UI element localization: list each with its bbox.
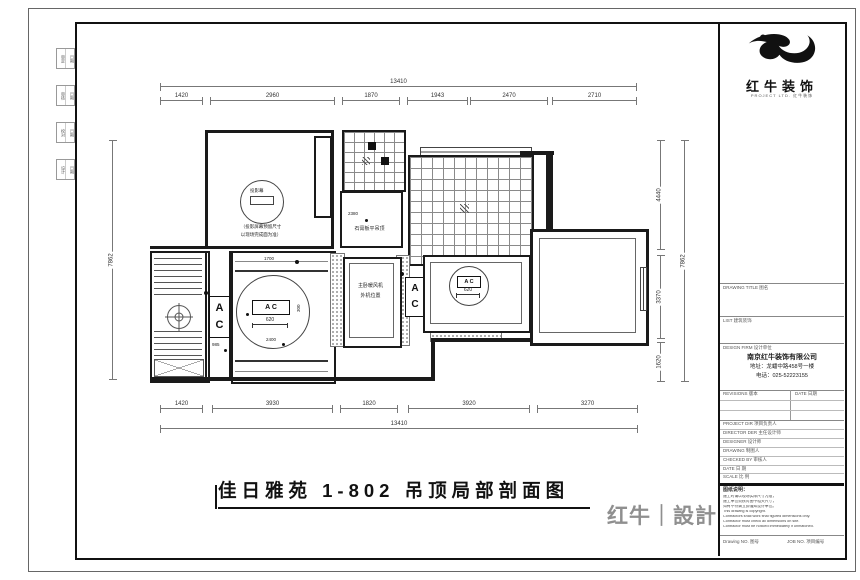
ceiling-fan-icon [167, 305, 191, 329]
tb-field-list: LIST 建筑装饰 [723, 319, 752, 324]
dim-bottom-seg: 3930 [212, 408, 333, 409]
louver-stripes [154, 331, 202, 357]
dim-bottom-seg: 1420 [160, 408, 203, 409]
tb-line [720, 343, 844, 344]
tb-row-scale: SCALE 比 例 [723, 475, 749, 480]
ac-dim-side: 300 [296, 304, 302, 312]
section-letter-c: C [216, 320, 224, 331]
tb-note: Contractors shall work final figured dim… [723, 515, 841, 519]
band-dim-bottom: 2400 [266, 337, 276, 343]
window-right [640, 267, 647, 311]
tb-note: 如有不符请立即通知设计单位。 [723, 505, 841, 509]
tb-drawing-no: Drawing NO. 图号 [723, 540, 759, 545]
section-letter-a: A [411, 284, 418, 294]
ac-dim: 620 [456, 294, 480, 295]
dim-right-seg: 3370 [660, 255, 661, 339]
section-letter-c: C [411, 300, 418, 310]
shaft-x-box [154, 359, 204, 377]
margin-sign-label: 审核 [57, 86, 66, 105]
gypsum-dim-label: 2380 [348, 211, 358, 217]
tb-note: 施工时请以现场实际尺寸为准， [723, 495, 841, 499]
louver-stripes [154, 258, 202, 298]
leader-dot [365, 219, 368, 222]
wall-segment [150, 246, 206, 249]
tb-note: 施工单位须核对图中相关尺寸， [723, 500, 841, 504]
dim-top-seg: 1420 [160, 100, 203, 101]
wall-bottom [431, 338, 532, 342]
ac-dim: 620 [252, 324, 288, 325]
dim-right-seg: 1620 [660, 342, 661, 382]
margin-sign-label: 审定 [57, 49, 66, 68]
ceiling-hatch-cell [362, 157, 370, 165]
dim-top-seg: 2470 [470, 100, 548, 101]
dim-top-seg: 2960 [210, 100, 335, 101]
tb-row-drawing: DRAWING 制图人 [723, 449, 759, 454]
tb-field-design-firm: DESIGN FIRM 设计单位 [723, 346, 772, 351]
leader-dot [204, 291, 208, 295]
section-letter-a: A [216, 303, 224, 314]
brand-design-logo: 红牛｜設計 [607, 500, 717, 530]
tb-field-drawing-title: DRAWING TITLE 图名 [723, 286, 768, 291]
tb-note: This drawing is copyright. [723, 510, 841, 514]
margin-sign-box: 校对 日期 [56, 122, 75, 143]
wall-cabinet [314, 136, 332, 218]
tb-field-date: DATE 日期 [795, 392, 817, 397]
tb-row-designer: DESIGNER 设计师 [723, 440, 761, 445]
tb-note: Contractor must check all dimensions on … [723, 520, 841, 524]
section-marker-ac: A C [405, 277, 425, 317]
dim-top-seg: 1943 [407, 100, 468, 101]
wall-segment [546, 155, 553, 230]
heater-label-2: 外机位置 [343, 293, 398, 299]
tb-row-date: DATE 日 期 [723, 467, 746, 472]
dim-bottom-overall: 13410 [160, 428, 638, 429]
ceiling-band-bottom [235, 360, 328, 372]
margin-sign-label: 校对 [57, 123, 66, 142]
projector-note-2: 以现场完成面为准） [221, 232, 301, 238]
leader-dot [400, 272, 404, 276]
tb-field-revisions: REVISIONS 版本 [723, 392, 758, 397]
ac-unit-box: A C [252, 300, 290, 315]
bull-logo-icon [745, 28, 820, 74]
tb-line [720, 410, 844, 411]
margin-sign-box: 审核 日期 [56, 85, 75, 106]
tb-line [720, 535, 844, 536]
wall-bottom [150, 377, 434, 381]
tb-line [720, 316, 844, 317]
dim-right-seg: 4440 [660, 140, 661, 250]
projector-note-1: （投影屏幕预留尺寸 [221, 224, 301, 230]
dim-bottom-seg: 3270 [537, 408, 638, 409]
ceiling-grid-large [408, 155, 534, 266]
tb-thick-line [719, 483, 844, 486]
tb-row-project-dir: PROJECT DIR 项目负责人 [723, 422, 777, 427]
drawing-title: 佳日雅苑 1-802 吊顶局部剖面图 [218, 477, 590, 509]
drawing-sheet: 审定 日期 审核 日期 校对 日期 设计 日期 13410 1420 2960 … [0, 0, 860, 580]
wall-segment [205, 251, 207, 379]
margin-sign-label: 设计 [57, 160, 66, 179]
tb-row-checked: CHECKED BY 审核人 [723, 458, 767, 463]
corridor-dim-label: 985 [212, 342, 220, 348]
tb-line [720, 400, 844, 401]
room-heater-inner [349, 263, 394, 338]
wall-step [431, 340, 435, 381]
dim-right-overall: 7862 [684, 140, 685, 382]
brand-tagline: PROJECT LTD. 红牛装饰 [720, 93, 844, 99]
leader-dot [224, 349, 227, 352]
title-block-divider [718, 22, 720, 556]
band-dim-top: 1700 [264, 256, 274, 262]
margin-sign-label: 日期 [66, 86, 74, 105]
tb-notes-title: 图纸说明： [723, 488, 748, 493]
ceiling-grid-small [342, 130, 406, 192]
balcony [150, 251, 210, 383]
dim-bottom-seg: 3920 [408, 408, 530, 409]
dim-top-seg: 2710 [552, 100, 637, 101]
tb-job-no: JOB NO. 项目编号 [787, 540, 824, 545]
ceiling-light-cell [368, 142, 376, 150]
tb-company: 南京红牛装饰有限公司 [720, 352, 844, 362]
dim-left-overall: 7862 [112, 140, 113, 380]
section-marker-ac: A C [209, 296, 230, 338]
projector-screen-label: 投影幕 [250, 188, 264, 194]
margin-sign-label: 日期 [66, 160, 74, 179]
margin-sign-label: 日期 [66, 123, 74, 142]
margin-sign-label: 日期 [66, 49, 74, 68]
room-gypsum-ceiling [340, 191, 403, 248]
heater-label-1: 主卧暖风机 [343, 283, 398, 289]
leader-dot [282, 343, 285, 346]
dim-bottom-seg: 1820 [340, 408, 398, 409]
ceiling-band-top [235, 261, 328, 272]
tb-line [790, 390, 791, 420]
tb-line [720, 283, 844, 284]
tb-row-director: DIRECTOR DER 主任设计师 [723, 431, 781, 436]
room-heater [343, 257, 402, 348]
tb-phone: 电话：025-52223155 [720, 371, 844, 379]
projector-screen-box [250, 196, 274, 205]
leader-dot [246, 313, 249, 316]
ceiling-hatch-cell [460, 204, 469, 213]
ceiling-light-cell [381, 157, 389, 165]
margin-sign-box: 设计 日期 [56, 159, 75, 180]
room-bottom-right-inner [539, 238, 636, 333]
tb-note: Contractor must be noticed immediately i… [723, 525, 841, 529]
margin-sign-box: 审定 日期 [56, 48, 75, 69]
gypsum-ceiling-label: 石膏板平吊顶 [340, 226, 399, 232]
tb-address: 地址：龙蟠中路458号一楼 [720, 362, 844, 370]
leader-dot [295, 260, 299, 264]
dim-top-seg: 1870 [342, 100, 400, 101]
dim-top-overall: 13410 [160, 86, 637, 87]
